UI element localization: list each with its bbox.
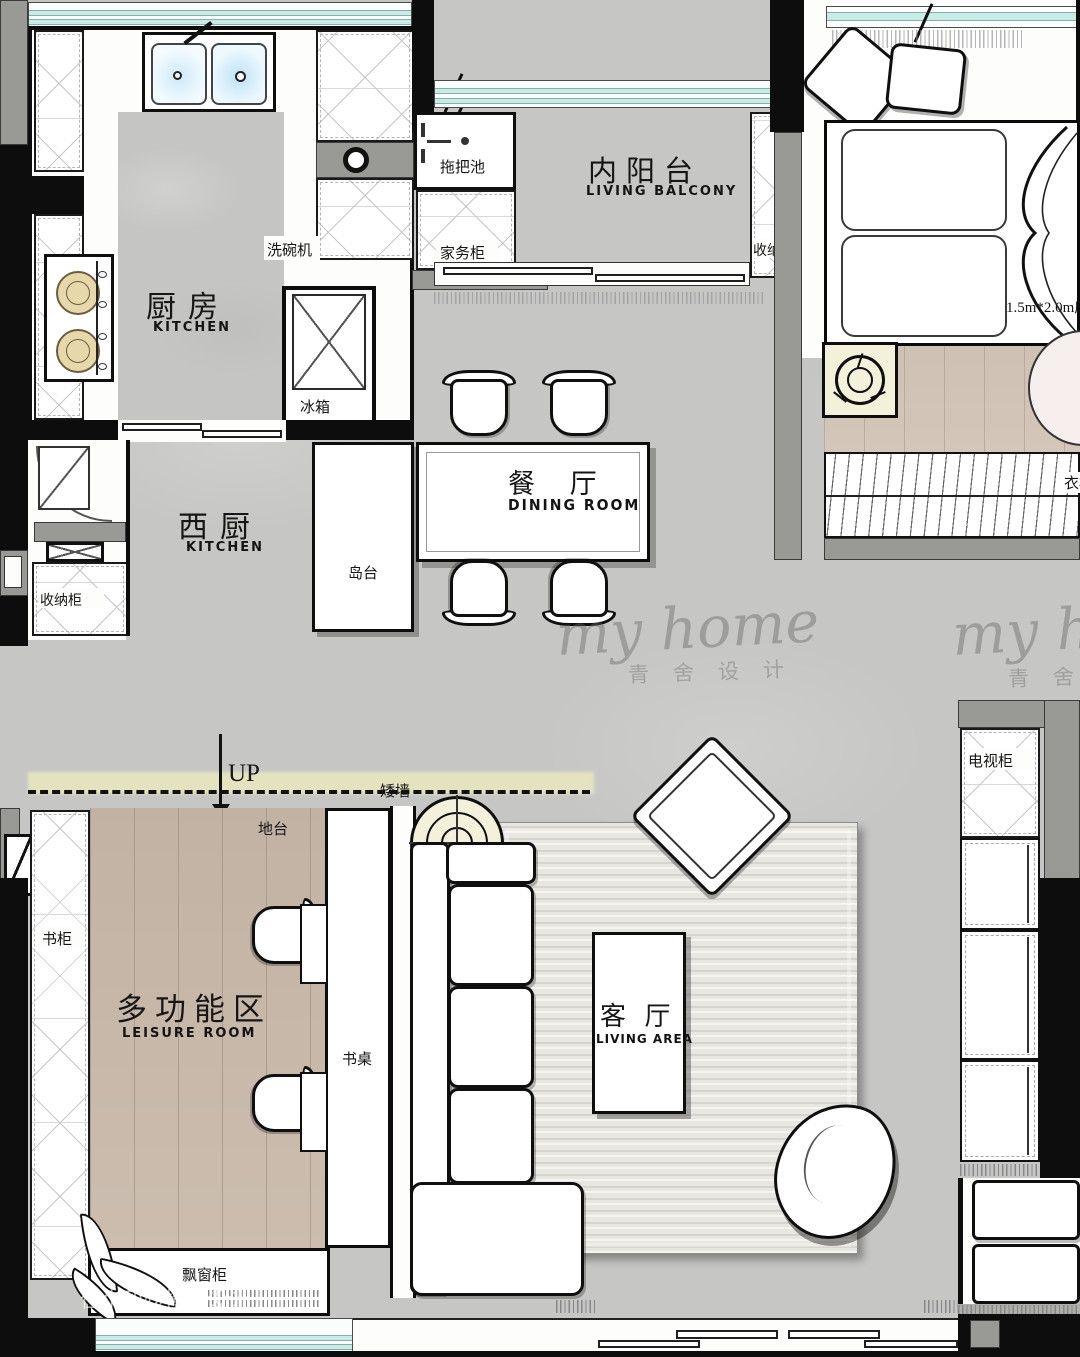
mop-sink-room [414, 112, 516, 190]
bed-size-label: 1.5m*2.0m床 [1006, 296, 1080, 317]
floor-plan: 洗碗机 冰箱 厨房 KITCHEN 拖把池 家务柜 内阳台 LIVING BAL… [0, 0, 1080, 1357]
west-kitchen-label-en: KITCHEN [186, 540, 264, 556]
island-counter [312, 442, 414, 632]
bookcase-label: 书柜 [42, 928, 72, 949]
living-area-label-zh: 客 厅 [600, 996, 677, 1033]
watermark-script-sub: 青舍设计 [628, 653, 809, 689]
up-label: UP [228, 760, 260, 788]
wall-segment [1040, 878, 1080, 1178]
kitchen-sliding-door [118, 420, 286, 442]
bedroom-window [826, 6, 1080, 28]
wall-segment [0, 0, 28, 145]
kitchen-floor [118, 112, 286, 422]
sofa-armrest [446, 842, 536, 884]
balcony-window [434, 80, 790, 108]
balcony-sliding-door [434, 262, 750, 286]
leisure-room-label-en: LEISURE ROOM [122, 1026, 256, 1042]
tv-unit [960, 838, 1040, 930]
kitchen-cabinet [316, 178, 414, 260]
wall-segment [0, 878, 28, 1318]
tv-cabinet-label: 电视柜 [968, 750, 1013, 771]
wall-segment [0, 1351, 1080, 1357]
kitchen-room-label-en: KITCHEN [153, 320, 231, 336]
sofa-chaise [410, 1182, 584, 1296]
up-arrow-icon [219, 734, 222, 806]
balcony-mat [434, 292, 764, 304]
pillow-icon [885, 42, 967, 116]
window-box-inner [4, 556, 22, 588]
entry-door-leaf-icon [38, 446, 90, 510]
cabinet-texture [960, 1164, 1040, 1176]
stove-icon [44, 254, 114, 382]
wardrobe-label: 衣柜 [1064, 472, 1080, 493]
wall-segment [34, 522, 126, 542]
living-area-label-en: LIVING AREA [596, 1032, 693, 1047]
watermark-script: my home [950, 589, 1080, 669]
low-wall-label: 矮墙 [380, 780, 410, 801]
housework-cabinet-label: 家务柜 [440, 242, 485, 263]
entry-storage-cabinet-label: 收纳柜 [40, 590, 82, 610]
kitchen-cabinet [34, 30, 84, 172]
wall-segment [126, 440, 130, 636]
dining-chair-icon [542, 372, 616, 438]
kitchen-hob-box [316, 142, 414, 178]
leisure-window [95, 1318, 353, 1352]
dining-chair-icon [442, 558, 516, 624]
wall-segment [824, 538, 1080, 560]
wall-segment [282, 420, 414, 440]
sofa-cushion [448, 986, 534, 1088]
wall-segment [774, 132, 802, 560]
wall-segment [1044, 700, 1080, 880]
island-label: 岛台 [348, 562, 378, 583]
sofa-cushion [448, 884, 534, 986]
bay-window-cabinet-label: 飘窗柜 [182, 1264, 227, 1285]
kitchen-window [28, 2, 412, 28]
stool-icon [822, 342, 898, 418]
tv-unit [960, 1060, 1040, 1162]
wardrobe-icon [824, 452, 1080, 538]
bottom-sliding-door [353, 1318, 958, 1354]
desk-label: 书桌 [342, 1048, 372, 1069]
entry-cross-cabinet [46, 542, 104, 562]
fridge-label: 冰箱 [300, 396, 330, 417]
radiator-texture [556, 1300, 596, 1313]
sink-icon [142, 32, 276, 112]
mop-sink-label: 拖把池 [440, 156, 485, 177]
wall-segment [770, 0, 804, 132]
platform-dashed-line [28, 790, 590, 794]
bed-cushion [972, 1244, 1080, 1304]
desk-chair-front [300, 904, 328, 984]
leisure-room-label-zh: 多功能区 [116, 984, 272, 1029]
balcony-room-label-en: LIVING BALCONY [586, 184, 737, 200]
wall-segment [28, 420, 122, 440]
wall-segment [970, 1320, 1000, 1348]
desk-chair-front [300, 1072, 328, 1152]
wall-segment [28, 176, 84, 214]
dining-chair-icon [442, 372, 516, 438]
platform-label: 地台 [258, 818, 288, 839]
tv-unit [960, 930, 1040, 1060]
wall-segment [0, 596, 28, 646]
dining-room-label-en: DINING ROOM [508, 498, 640, 515]
watermark-script-sub: 青舍设计 [1008, 657, 1080, 693]
wall-segment [0, 145, 28, 550]
bookcase [30, 810, 90, 1280]
bed-cushion [972, 1180, 1080, 1240]
dishwasher-label: 洗碗机 [267, 239, 312, 260]
dining-room-label-zh: 餐 厅 [508, 462, 611, 501]
wall-segment [958, 1178, 963, 1304]
kitchen-cabinet [316, 30, 414, 142]
tv-cabinet [960, 728, 1040, 838]
credit-watermark: 住小帮@橙子设计 [80, 1284, 248, 1314]
desk [325, 808, 391, 1248]
sofa-cushion [448, 1088, 534, 1184]
